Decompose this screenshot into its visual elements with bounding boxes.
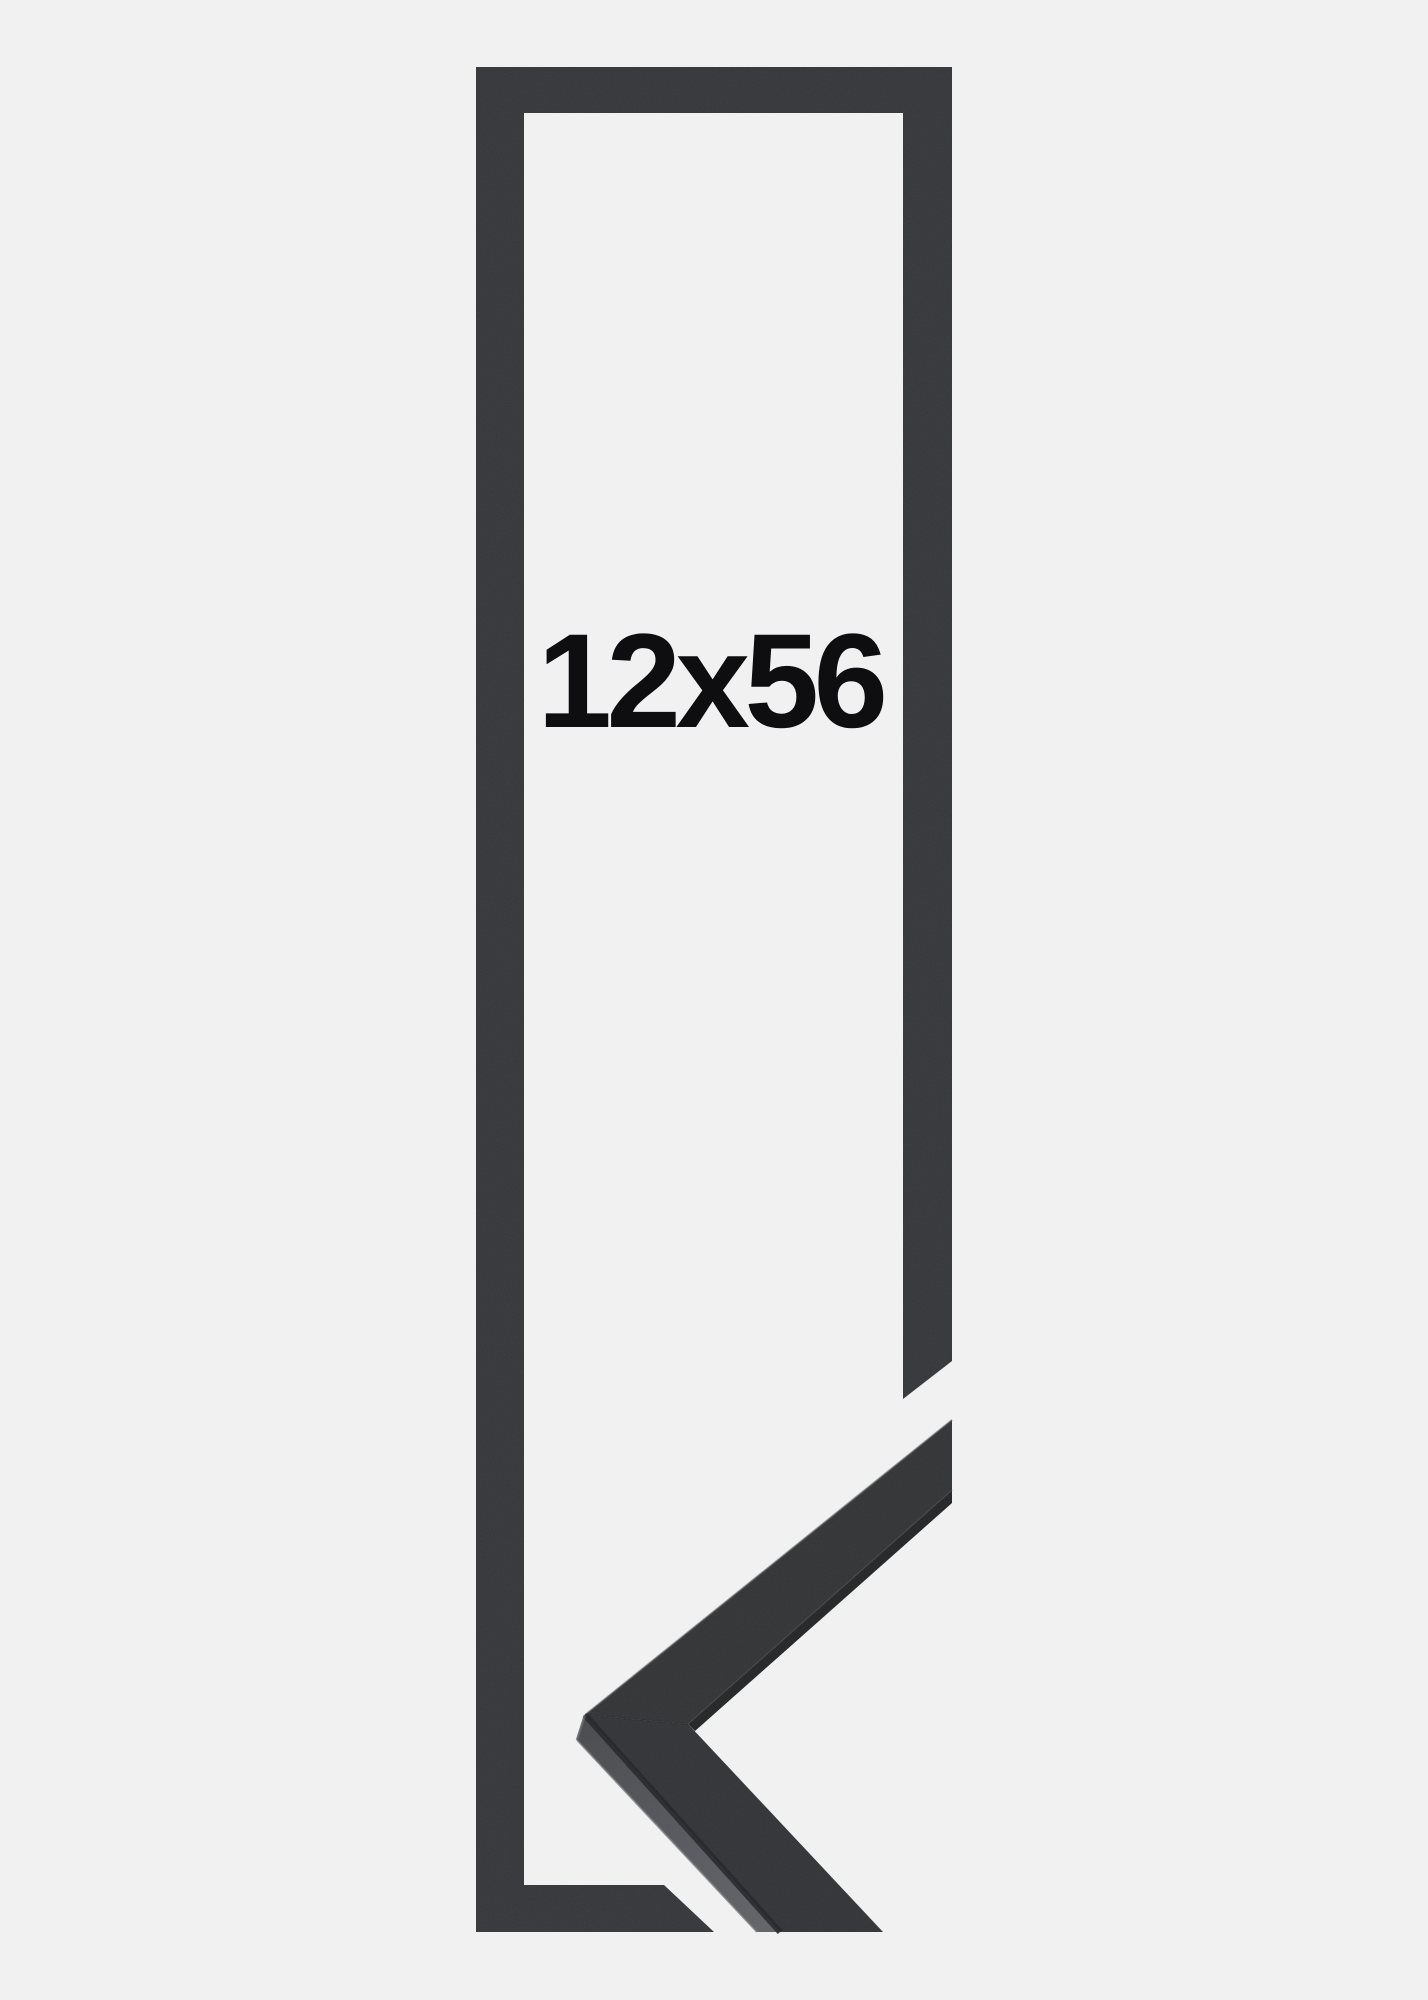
- frame-product-graphic: 12x56: [0, 0, 1428, 2000]
- size-label: 12x56: [537, 607, 883, 756]
- grain-texture-overlay: [0, 0, 1428, 2000]
- product-image: 12x56: [0, 0, 1428, 2000]
